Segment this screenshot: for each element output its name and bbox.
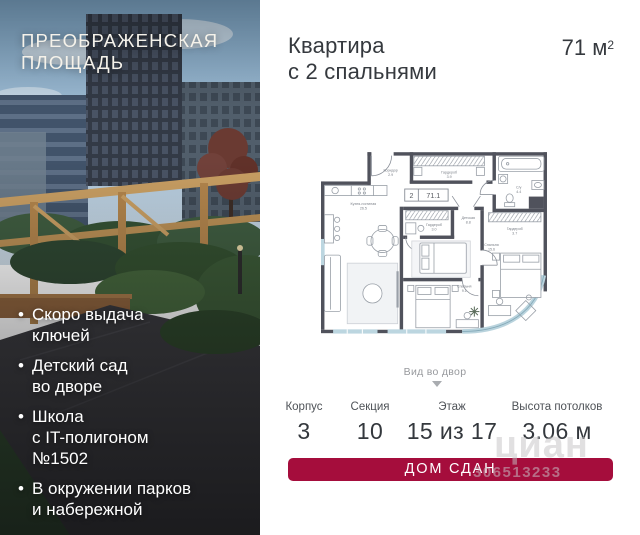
room-area: 15.6 <box>488 248 495 252</box>
apartment-details: Квартира с 2 спальнями 71 м2 <box>260 0 640 535</box>
plant-icon <box>469 307 479 317</box>
apartment-title: Квартира с 2 спальнями <box>288 33 437 85</box>
stat-building: Корпус 3 <box>285 401 322 445</box>
stat-label: Секция <box>351 401 390 413</box>
bullet-icon: • <box>18 406 32 469</box>
project-photo: ПРЕОБРАЖЕНСКАЯ ПЛОЩАДЬ • Скоро выдача кл… <box>0 0 260 535</box>
room-label: Кухня-гостиная <box>351 202 377 206</box>
stat-section: Секция 10 <box>351 401 390 445</box>
apartment-title-line2: с 2 спальнями <box>288 59 437 85</box>
room-area: 3.9 <box>447 175 452 179</box>
stat-ceiling-height: Высота потолков 3.06 м <box>512 401 603 445</box>
stat-value: 3.06 м <box>512 418 603 445</box>
stat-value: 3 <box>285 418 322 445</box>
room-area: 9.1 <box>462 289 467 293</box>
area-unit: м <box>592 35 607 60</box>
chevron-down-icon <box>432 381 442 387</box>
project-title: ПРЕОБРАЖЕНСКАЯ ПЛОЩАДЬ <box>21 30 241 74</box>
project-features-list: • Скоро выдача ключей • Детский сад во д… <box>18 304 248 529</box>
room-label: Гардероб <box>426 223 442 227</box>
feature-item: • В окружении парков и набережной <box>18 478 248 520</box>
room-area: 3.7 <box>512 231 517 235</box>
room-area: 2.9 <box>388 173 393 177</box>
room-label: Спальня <box>484 243 499 247</box>
bullet-icon: • <box>18 478 32 520</box>
bullet-icon: • <box>18 304 32 346</box>
stat-label: Корпус <box>285 401 322 413</box>
view-label: Вид во двор <box>321 366 549 378</box>
house-delivered-button[interactable]: ДОМ СДАН <box>288 458 613 481</box>
stat-value: 10 <box>351 418 390 445</box>
stat-floor: Этаж 15 из 17 <box>407 401 498 445</box>
badge-rooms: 2 <box>410 193 414 200</box>
feature-item: • Детский сад во дворе <box>18 355 248 397</box>
badge-area: 71.1 <box>426 193 440 200</box>
listing-card: ПРЕОБРАЖЕНСКАЯ ПЛОЩАДЬ • Скоро выдача кл… <box>0 0 640 535</box>
room-area: 26.5 <box>360 207 367 211</box>
area-value: 71 <box>562 35 586 60</box>
room-label: Детская <box>462 216 475 220</box>
plan-badge: 2 71.1 <box>405 189 448 201</box>
bullet-icon: • <box>18 355 32 397</box>
feature-item: • Скоро выдача ключей <box>18 304 248 346</box>
stat-label: Высота потолков <box>512 401 603 413</box>
stat-label: Этаж <box>407 401 498 413</box>
floor-plan-drawing: 2 71.1 Коридор 2.9 Гардероб 3.9 С/у 4.4 … <box>321 152 549 336</box>
project-title-line2: ПЛОЩАДЬ <box>21 52 241 74</box>
room-label: Гардероб <box>441 170 457 174</box>
floor-plan: 2 71.1 Коридор 2.9 Гардероб 3.9 С/у 4.4 … <box>321 152 549 336</box>
room-area: 3.0 <box>431 227 436 231</box>
feature-item: • Школа с IT-полигоном №1502 <box>18 406 248 469</box>
room-area: 4.4 <box>516 190 521 194</box>
area-exponent: 2 <box>607 38 614 52</box>
apartment-title-line1: Квартира <box>288 33 437 59</box>
room-label: Спальня <box>457 284 472 288</box>
apartment-area: 71 м2 <box>562 35 614 61</box>
project-title-line1: ПРЕОБРАЖЕНСКАЯ <box>21 30 241 52</box>
stat-value: 15 из 17 <box>407 418 498 445</box>
room-area: 8.8 <box>466 220 471 224</box>
room-label: С/у <box>516 186 522 190</box>
room-label: Гардероб <box>507 227 523 231</box>
room-label: Коридор <box>383 168 397 172</box>
